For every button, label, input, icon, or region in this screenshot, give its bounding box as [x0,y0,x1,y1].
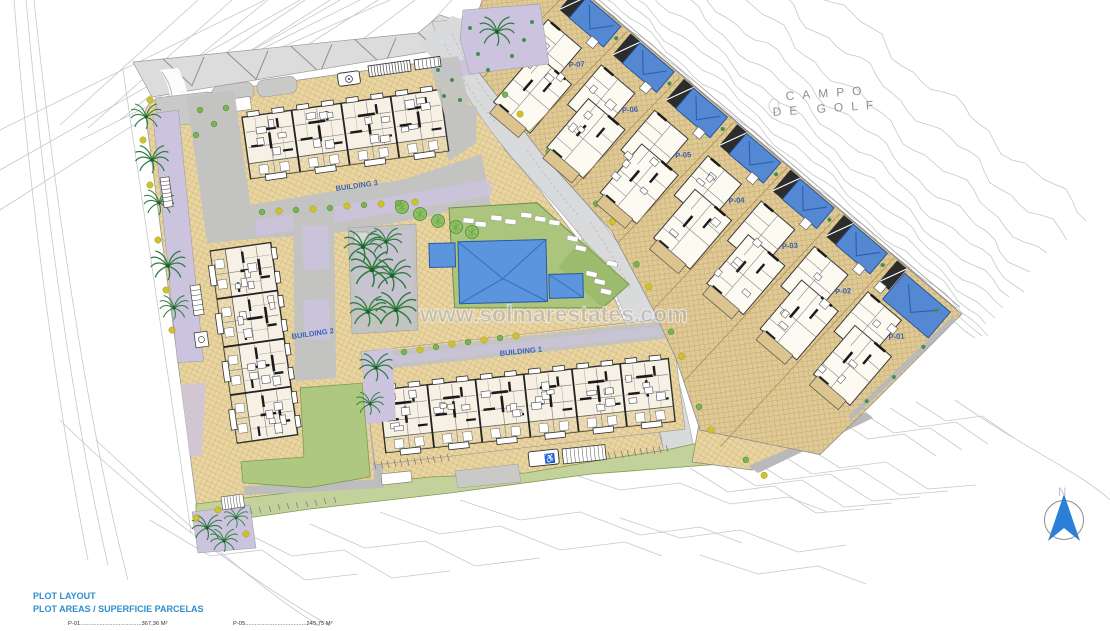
svg-text:P-01..........................: P-01....................................… [68,621,168,626]
svg-text:P-03: P-03 [782,241,799,251]
svg-text:www.solmarestates.com: www.solmarestates.com [419,301,688,327]
svg-text:N: N [1058,487,1066,499]
svg-text:P-06: P-06 [622,105,639,115]
svg-text:PLOT LAYOUT: PLOT LAYOUT [33,591,96,601]
svg-text:PLOT AREAS / SUPERFICIE PARCEL: PLOT AREAS / SUPERFICIE PARCELAS [33,604,204,614]
svg-text:P-01: P-01 [888,331,905,341]
svg-text:P-07: P-07 [568,59,585,69]
svg-text:P-02: P-02 [835,286,852,296]
svg-text:♿: ♿ [544,452,556,464]
svg-text:P-05..........................: P-05....................................… [233,621,333,626]
svg-text:P-05: P-05 [675,150,692,160]
svg-text:P-04: P-04 [728,195,745,205]
